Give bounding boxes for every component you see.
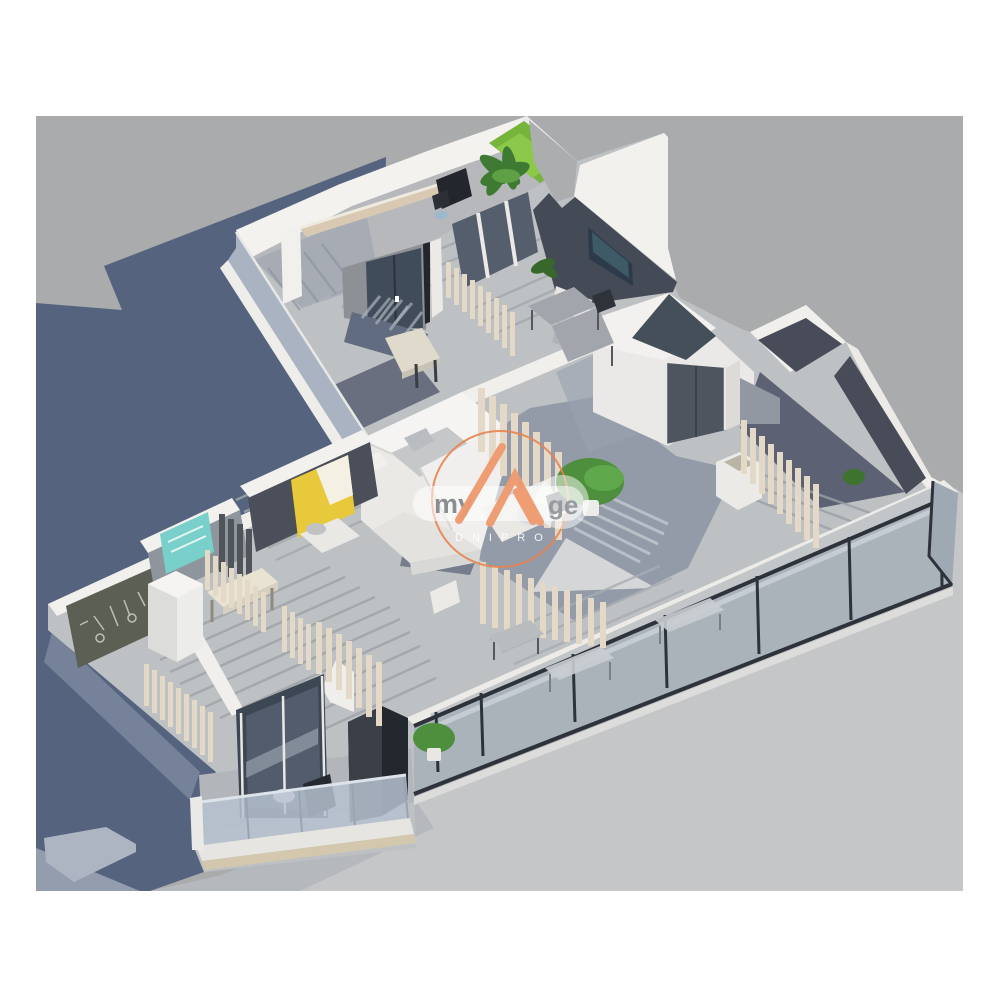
svg-text:ge: ge: [548, 490, 578, 520]
svg-text:DNIPRO: DNIPRO: [455, 532, 552, 544]
